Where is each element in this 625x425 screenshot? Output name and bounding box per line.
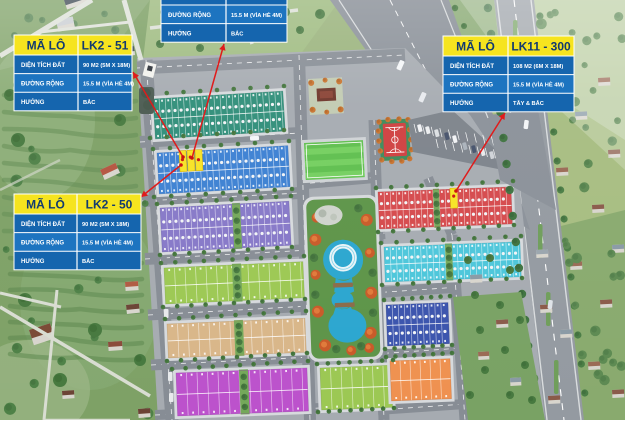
svg-text:LK11 - 300: LK11 - 300 xyxy=(511,40,571,54)
svg-text:HƯỚNG: HƯỚNG xyxy=(168,30,192,38)
svg-text:BẮC: BẮC xyxy=(82,257,94,265)
svg-text:DIỆN TÍCH ĐẤT: DIỆN TÍCH ĐẤT xyxy=(450,62,494,70)
svg-text:MÃ LÔ: MÃ LÔ xyxy=(26,197,65,212)
svg-text:DIỆN TÍCH ĐẤT: DIỆN TÍCH ĐẤT xyxy=(21,61,65,69)
svg-text:MÃ LÔ: MÃ LÔ xyxy=(27,38,66,53)
svg-text:HƯỚNG: HƯỚNG xyxy=(21,98,45,106)
svg-text:MÃ LÔ: MÃ LÔ xyxy=(456,39,495,54)
svg-text:ĐƯỜNG RỘNG: ĐƯỜNG RỘNG xyxy=(450,81,493,89)
svg-text:90 M2 (5M X 18M): 90 M2 (5M X 18M) xyxy=(83,63,130,69)
svg-text:ĐƯỜNG RỘNG: ĐƯỜNG RỘNG xyxy=(168,11,211,19)
svg-text:15.5 M (VỈA HÈ 4M): 15.5 M (VỈA HÈ 4M) xyxy=(513,81,564,89)
svg-text:LK2 - 50: LK2 - 50 xyxy=(86,198,133,212)
svg-text:HƯỚNG: HƯỚNG xyxy=(450,99,474,107)
svg-text:ĐƯỜNG RỘNG: ĐƯỜNG RỘNG xyxy=(21,239,64,247)
svg-text:15.5 M (VỈA HÈ 4M): 15.5 M (VỈA HÈ 4M) xyxy=(231,11,282,19)
svg-text:TÂY & BẮC: TÂY & BẮC xyxy=(513,99,544,107)
svg-text:15.5 M (VỈA HÈ 4M): 15.5 M (VỈA HÈ 4M) xyxy=(82,239,133,247)
svg-text:BẮC: BẮC xyxy=(83,98,95,106)
svg-text:108 M2 (6M X 18M): 108 M2 (6M X 18M) xyxy=(513,64,563,70)
svg-text:LK2 - 51: LK2 - 51 xyxy=(82,39,129,53)
svg-text:15.5 M (VỈA HÈ 4M): 15.5 M (VỈA HÈ 4M) xyxy=(83,80,134,88)
svg-text:HƯỚNG: HƯỚNG xyxy=(21,257,45,265)
svg-text:90 M2 (5M X 18M): 90 M2 (5M X 18M) xyxy=(82,222,129,228)
svg-text:BẮC: BẮC xyxy=(231,30,243,38)
svg-text:ĐƯỜNG RỘNG: ĐƯỜNG RỘNG xyxy=(21,80,64,88)
svg-text:DIỆN TÍCH ĐẤT: DIỆN TÍCH ĐẤT xyxy=(21,220,65,228)
